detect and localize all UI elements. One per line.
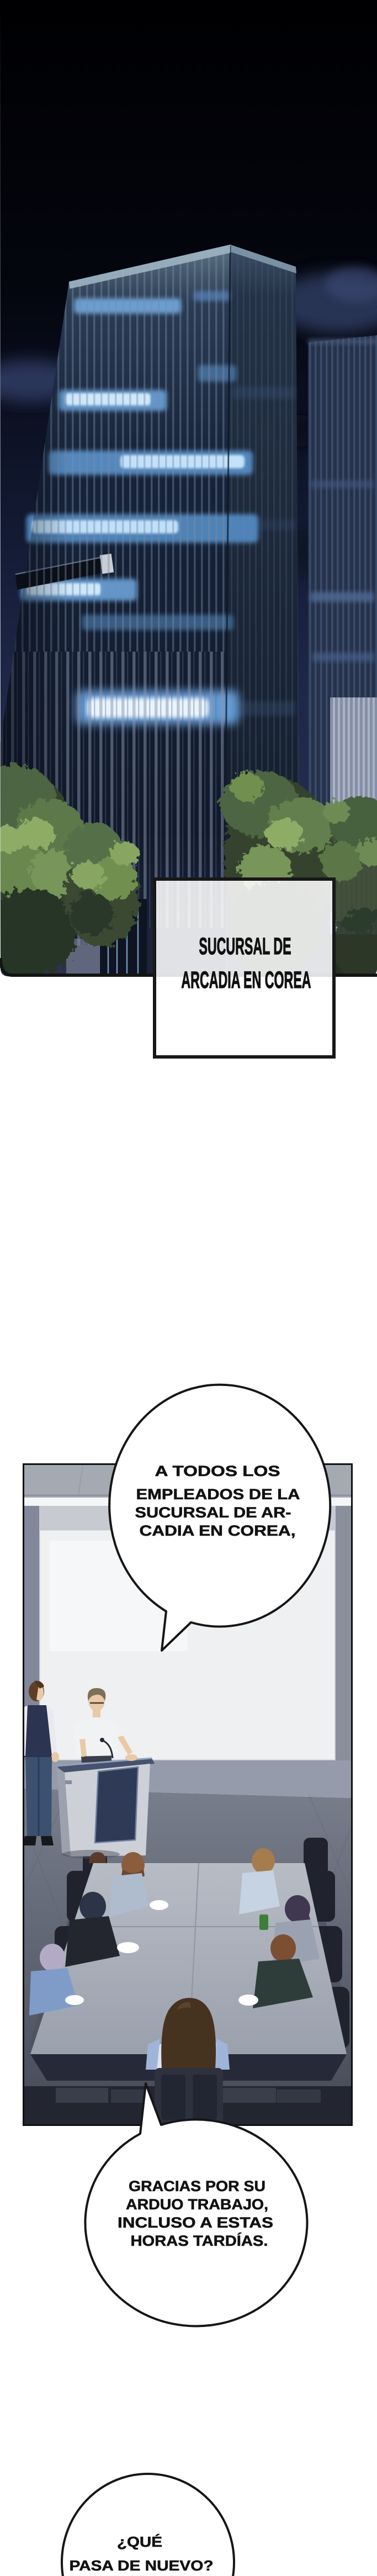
svg-text:INCLUSO A ESTAS: INCLUSO A ESTAS: [118, 2214, 273, 2231]
svg-text:CADIA EN COREA,: CADIA EN COREA,: [140, 1522, 296, 1539]
svg-text:A TODOS LOS: A TODOS LOS: [155, 1463, 280, 1479]
svg-text:EMPLEADOS DE LA: EMPLEADOS DE LA: [136, 1486, 300, 1503]
svg-text:HORAS TARDÍAS.: HORAS TARDÍAS.: [131, 2232, 268, 2249]
svg-text:ARCADIA EN COREA: ARCADIA EN COREA: [181, 967, 311, 993]
svg-text:¿QUÉ: ¿QUÉ: [117, 2533, 162, 2550]
svg-text:ARDUO TRABAJO,: ARDUO TRABAJO,: [126, 2196, 268, 2213]
svg-text:SUCURSAL DE: SUCURSAL DE: [199, 934, 291, 960]
svg-text:SUCURSAL DE AR-: SUCURSAL DE AR-: [135, 1504, 291, 1521]
svg-text:PASA DE NUEVO?: PASA DE NUEVO?: [70, 2557, 214, 2574]
svg-text:GRACIAS POR SU: GRACIAS POR SU: [129, 2178, 266, 2194]
